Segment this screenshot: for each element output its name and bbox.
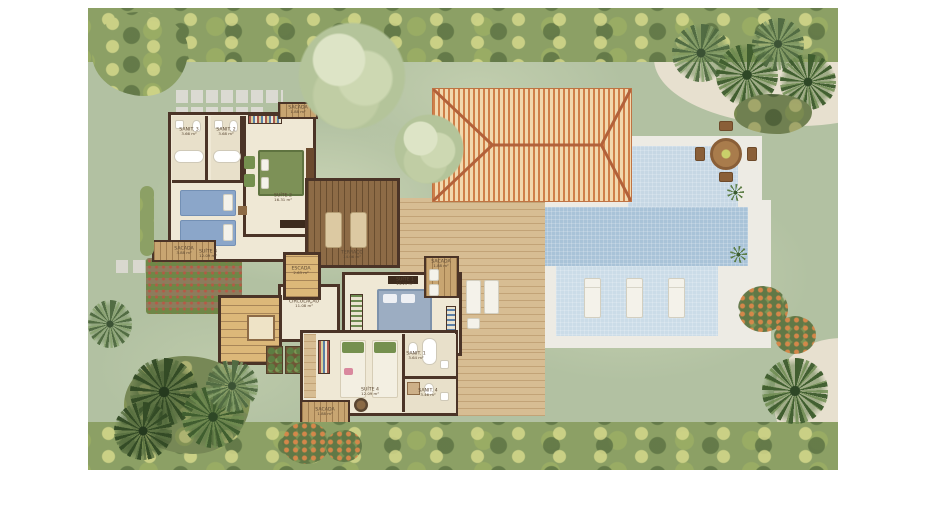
room-area: 14.06 m²: [341, 255, 363, 259]
room-area: 3.88 m²: [174, 251, 193, 255]
room-area: 3.46 m²: [418, 393, 437, 397]
palm-tree-right: [762, 358, 828, 424]
label-terraco: TERRAÇO 14.06 m²: [341, 250, 363, 260]
pillow-suite-4a: [342, 342, 364, 353]
bathtub-sanit-2: [213, 150, 241, 163]
paver-path-row-1: [176, 90, 283, 103]
flower-bush-bottom-1: [282, 422, 330, 464]
pillow-suite-2a: [261, 159, 269, 171]
garden-chair-west: [695, 147, 705, 161]
terrace-chaise-1: [325, 212, 342, 248]
pillow-suite-1a: [383, 294, 397, 303]
tree-mid: [394, 114, 464, 184]
deck-side-table: [467, 318, 480, 329]
deck-lounger-1: [466, 280, 481, 314]
bathtub-sanit-3: [174, 150, 204, 163]
table-suite-4: [354, 398, 368, 412]
label-sanit-1: SANIT. 1 3.64 m²: [406, 351, 425, 361]
armchair-suite-2b: [244, 174, 255, 187]
garden-round-table: [710, 138, 742, 170]
garden-chair-south: [719, 172, 733, 182]
tree-top-center: [298, 22, 406, 130]
room-area: 3.64 m²: [406, 356, 425, 360]
label-sanit-3: SANIT. 3 3.66 m²: [179, 127, 198, 137]
fern-west: [88, 300, 132, 348]
closet-suite-2: [248, 115, 282, 124]
floor-plan-canvas: SANIT. 3 3.66 m² SANIT. 2 3.68 m² SUÍTE …: [0, 0, 939, 514]
pillow-suite-3a: [223, 194, 233, 211]
room-area: 3.68 m²: [216, 132, 235, 136]
flower-bush-bottom-2: [326, 430, 362, 462]
label-circulacao: CIRCULAÇÃO 11.08 m²: [289, 299, 319, 309]
sink-sanit-1: [440, 360, 449, 369]
label-sanit-2: SANIT. 2 3.68 m²: [216, 127, 235, 137]
label-escada: ESCADA 2.63 m²: [291, 266, 310, 276]
room-area: 1.88 m²: [315, 412, 334, 416]
wall-below-baths: [172, 180, 246, 183]
pool-lounger-3: [668, 278, 685, 318]
room-escada: [283, 252, 321, 300]
room-area: 12.09 m²: [199, 254, 217, 258]
deck-lounger-2: [484, 280, 499, 314]
label-sacada-suite-4: SACADA 1.88 m²: [315, 407, 334, 417]
bed-suite-3a: [180, 190, 236, 216]
pool-lounger-2: [626, 278, 643, 318]
garden-chair-north: [719, 121, 733, 131]
planter-1: [266, 346, 283, 374]
pillow-suite-1b: [401, 294, 415, 303]
room-area: 3.66 m²: [179, 132, 198, 136]
pool-main-basin: [535, 207, 748, 266]
pillow-suite-2b: [261, 177, 269, 189]
terrace-chaise-2: [350, 212, 367, 248]
palm-tree-bl-3: [114, 402, 172, 460]
room-area: 11.08 m²: [289, 304, 319, 308]
room-area: 16.31 m²: [274, 198, 292, 202]
site-plan: SANIT. 3 3.66 m² SANIT. 2 3.68 m² SUÍTE …: [88, 8, 838, 470]
room-area: 14.21 m²: [396, 282, 414, 286]
balcony-chair-1: [429, 269, 439, 281]
room-area: 2.63 m²: [291, 271, 310, 275]
room-area: 1.88 m²: [288, 110, 307, 114]
label-sacada-suite-2: SACADA 1.88 m²: [288, 105, 307, 115]
label-suite-4: SUÍTE 4 12.09 m²: [361, 387, 379, 397]
bed-suite-2: [258, 150, 304, 196]
tv-cabinet-suite-2: [280, 220, 306, 228]
wood-strip-suite-4: [304, 334, 316, 398]
vine-hedge-west: [140, 186, 154, 256]
room-area: 12.09 m²: [361, 392, 379, 396]
stair-landing: [247, 315, 275, 341]
garden-chair-east: [747, 147, 757, 161]
flower-bush-right-2: [774, 316, 816, 354]
closet-suite-4: [318, 340, 330, 374]
bush-top-right: [734, 94, 812, 134]
blanket-suite-4a: [344, 368, 353, 375]
label-sacada-suite-1: SACADA 1.88 m²: [431, 259, 450, 269]
bush-corner-top-left: [92, 12, 188, 96]
sink-sanit-4: [440, 392, 449, 401]
label-sacada-suite-3: SACADA 3.88 m²: [174, 246, 193, 256]
pool-corner-plant-1: [727, 184, 744, 201]
pool-lounger-1: [584, 278, 601, 318]
room-area: 1.88 m²: [431, 264, 450, 268]
nightstand-suite-3: [238, 206, 247, 215]
armchair-suite-2a: [244, 156, 255, 169]
pillow-suite-3b: [223, 224, 233, 241]
pillow-suite-4b: [374, 342, 396, 353]
label-suite-2: SUÍTE 2 16.31 m²: [274, 193, 292, 203]
pool-corner-plant-3: [730, 246, 747, 263]
label-suite-1: SUÍTE 1 14.21 m²: [396, 277, 414, 287]
palm-tree-bl-4: [206, 360, 258, 412]
label-sanit-4: SANIT. 4 3.46 m²: [418, 388, 437, 398]
balcony-chair-2: [429, 284, 439, 296]
label-suite-3: SUÍTE 3 12.09 m²: [199, 249, 217, 259]
